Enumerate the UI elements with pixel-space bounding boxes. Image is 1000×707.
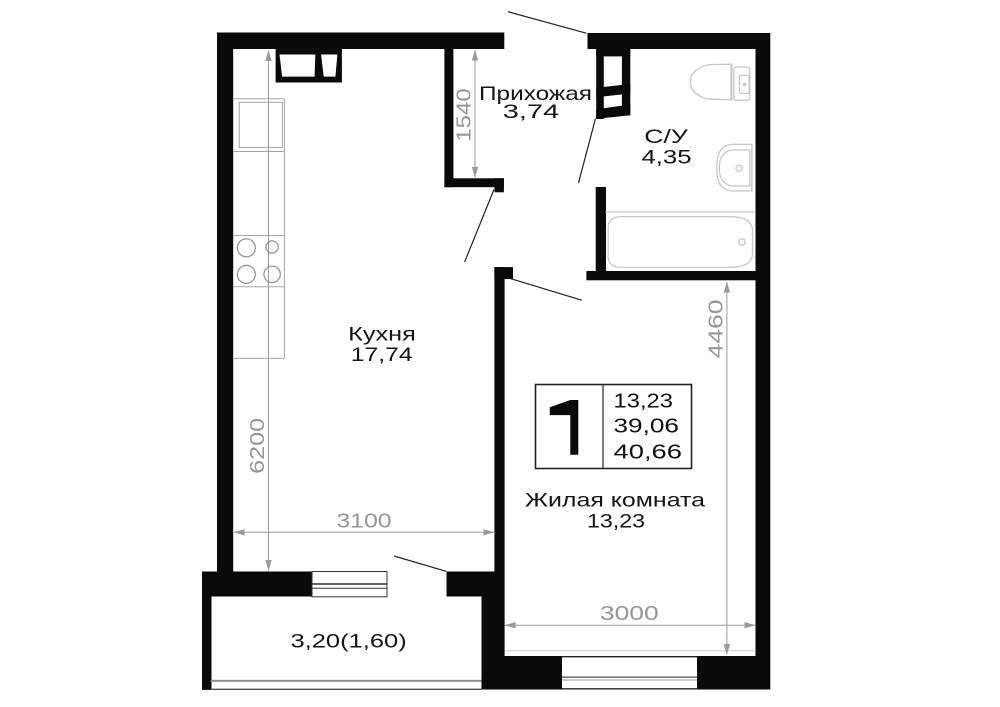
svg-text:13,23: 13,23 bbox=[587, 510, 645, 532]
svg-text:40,66: 40,66 bbox=[614, 441, 683, 463]
svg-text:4460: 4460 bbox=[706, 300, 728, 359]
svg-text:Жилая комната: Жилая комната bbox=[525, 490, 705, 512]
svg-text:3,74: 3,74 bbox=[503, 101, 560, 123]
svg-text:Кухня: Кухня bbox=[348, 324, 416, 346]
svg-text:С/У: С/У bbox=[644, 126, 688, 148]
svg-text:3,20(1,60): 3,20(1,60) bbox=[291, 630, 407, 652]
svg-text:17,74: 17,74 bbox=[351, 344, 413, 366]
svg-text:3000: 3000 bbox=[600, 603, 659, 625]
svg-text:3100: 3100 bbox=[336, 510, 391, 532]
svg-text:4,35: 4,35 bbox=[642, 147, 692, 169]
svg-text:1540: 1540 bbox=[453, 88, 475, 142]
svg-text:39,06: 39,06 bbox=[614, 416, 680, 438]
svg-text:6200: 6200 bbox=[247, 418, 269, 474]
svg-text:13,23: 13,23 bbox=[614, 390, 674, 412]
